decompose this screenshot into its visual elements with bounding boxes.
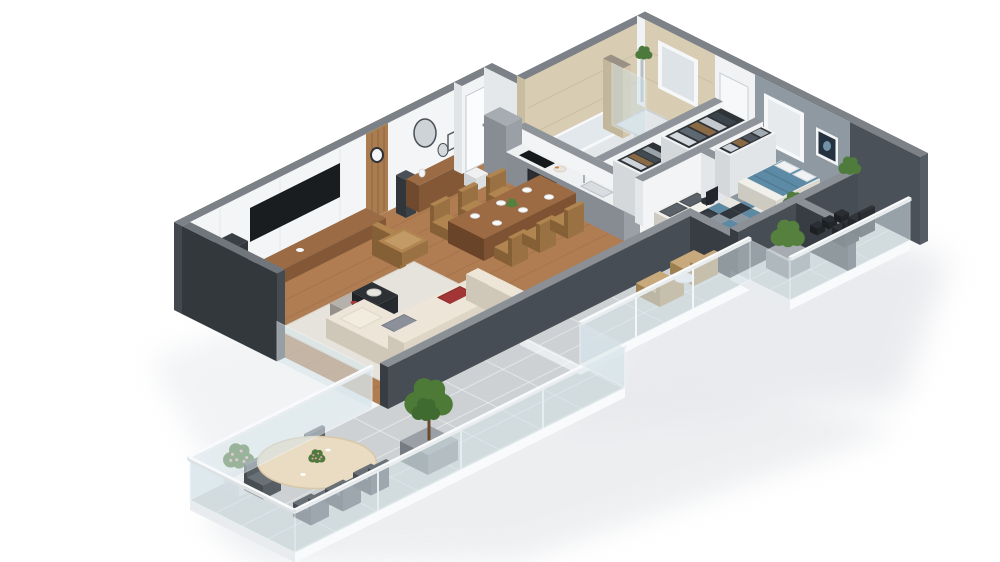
round-mirror-small [438, 144, 448, 157]
fruit [555, 167, 559, 169]
dining-chair-back [536, 223, 540, 253]
terrace-tree-shade [420, 409, 432, 421]
table-centerpiece [510, 203, 515, 208]
small-balcony-plant [849, 157, 858, 166]
terrace-tree-shade [425, 399, 436, 410]
plate [470, 214, 479, 219]
dining-chair-back [564, 209, 568, 239]
table-tray [367, 289, 381, 296]
cup [300, 473, 306, 476]
bathroom-shelf-plant [640, 52, 647, 59]
plate [492, 221, 501, 226]
floorplan-render-canvas [0, 0, 1000, 562]
table-flowers-flowers [319, 458, 321, 460]
ne-wall [920, 153, 928, 245]
small-balcony-plant [845, 165, 855, 175]
plate [518, 208, 527, 213]
table-flowers [316, 450, 323, 457]
bench-decor [296, 248, 304, 252]
console-vase [419, 169, 425, 177]
hall-bedroom-wall [635, 178, 643, 227]
art-highlight [823, 141, 831, 151]
table-flowers-flowers [312, 458, 314, 460]
entry-wall [454, 82, 462, 174]
wood-slat-panel [366, 123, 388, 222]
apartment-3d-floorplan [0, 0, 1000, 562]
balcony-bush [786, 221, 799, 234]
table-flowers-flowers [317, 453, 319, 455]
sculpture [396, 175, 406, 218]
nw-wall-living [174, 222, 182, 314]
plate [522, 188, 531, 193]
cup [325, 449, 331, 452]
plate [496, 201, 505, 206]
table-flowers-flowers [312, 454, 314, 456]
round-mirror-large [414, 119, 436, 147]
terrace-tree [426, 380, 445, 399]
table-centerpiece [511, 199, 515, 203]
dining-chair-back [508, 237, 512, 267]
balcony-bush [781, 233, 795, 247]
plate [544, 195, 553, 200]
table-flowers-flowers [315, 457, 317, 459]
wall-clock [371, 148, 383, 162]
table-flowers-flowers [320, 456, 322, 458]
living-front-parapet [380, 363, 388, 409]
bathroom-shelf-plant [643, 46, 650, 53]
